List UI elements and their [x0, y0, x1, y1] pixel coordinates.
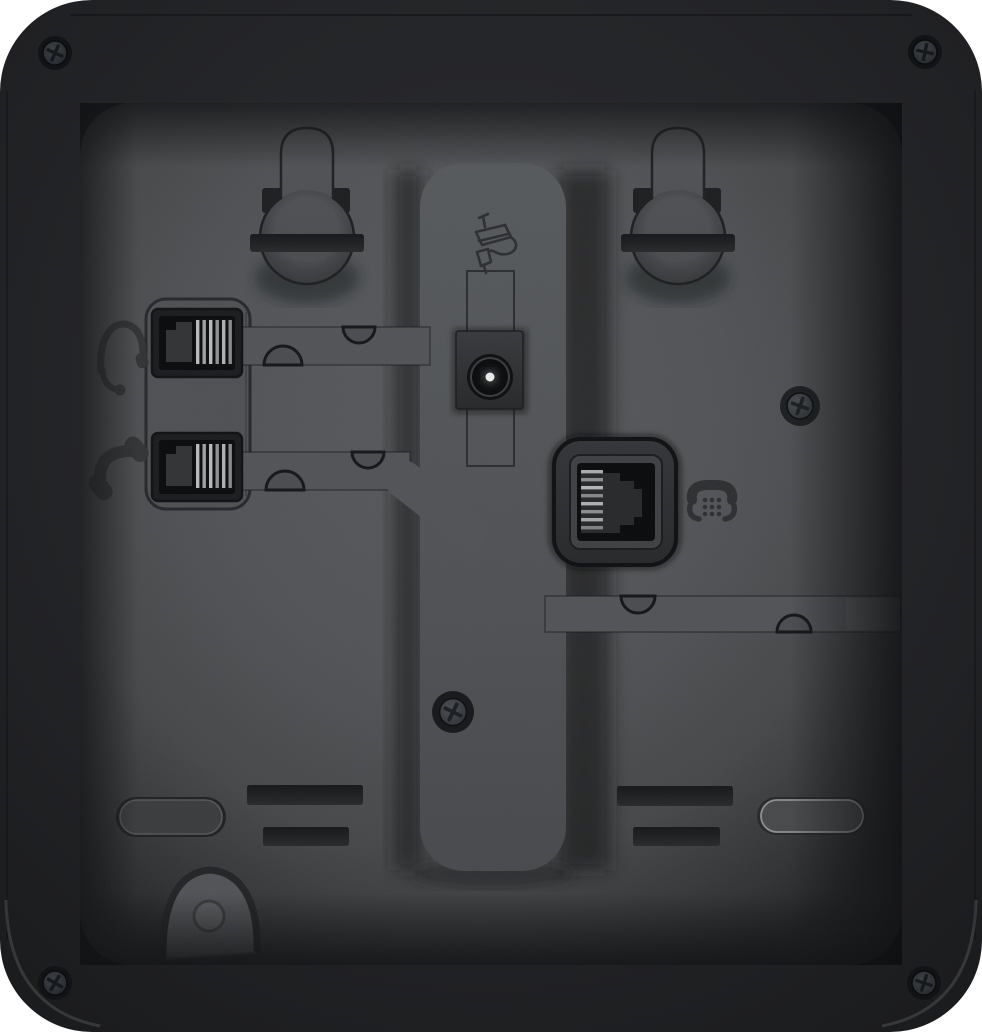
mounting-slot	[621, 234, 735, 252]
corner-screw-top-left	[38, 36, 72, 70]
mounting-slot	[247, 785, 363, 805]
photo-canvas	[0, 0, 982, 1032]
hook-nub	[194, 901, 224, 931]
line-port	[549, 435, 681, 569]
center-pin	[486, 373, 495, 382]
stand-column-screw	[432, 691, 474, 733]
keypad-dots	[703, 498, 722, 517]
corner-screw-bottom-right	[907, 966, 941, 1000]
dc-power-jack	[453, 329, 527, 413]
handset-port	[152, 433, 242, 501]
mounting-slot	[633, 827, 720, 846]
headset-port	[152, 309, 242, 377]
rubber-foot-left	[116, 797, 226, 837]
mounting-slot	[250, 234, 364, 252]
corner-screw-bottom-left	[38, 966, 72, 1000]
rubber-foot-right	[757, 797, 867, 835]
cable-channel-right	[545, 596, 901, 632]
cable-channel-upper	[242, 327, 430, 365]
panel-screw	[780, 386, 820, 426]
phone-rear-photo	[0, 0, 982, 1032]
corner-screw-top-right	[908, 35, 942, 69]
mounting-slot	[263, 827, 349, 846]
mounting-slot	[617, 786, 733, 806]
